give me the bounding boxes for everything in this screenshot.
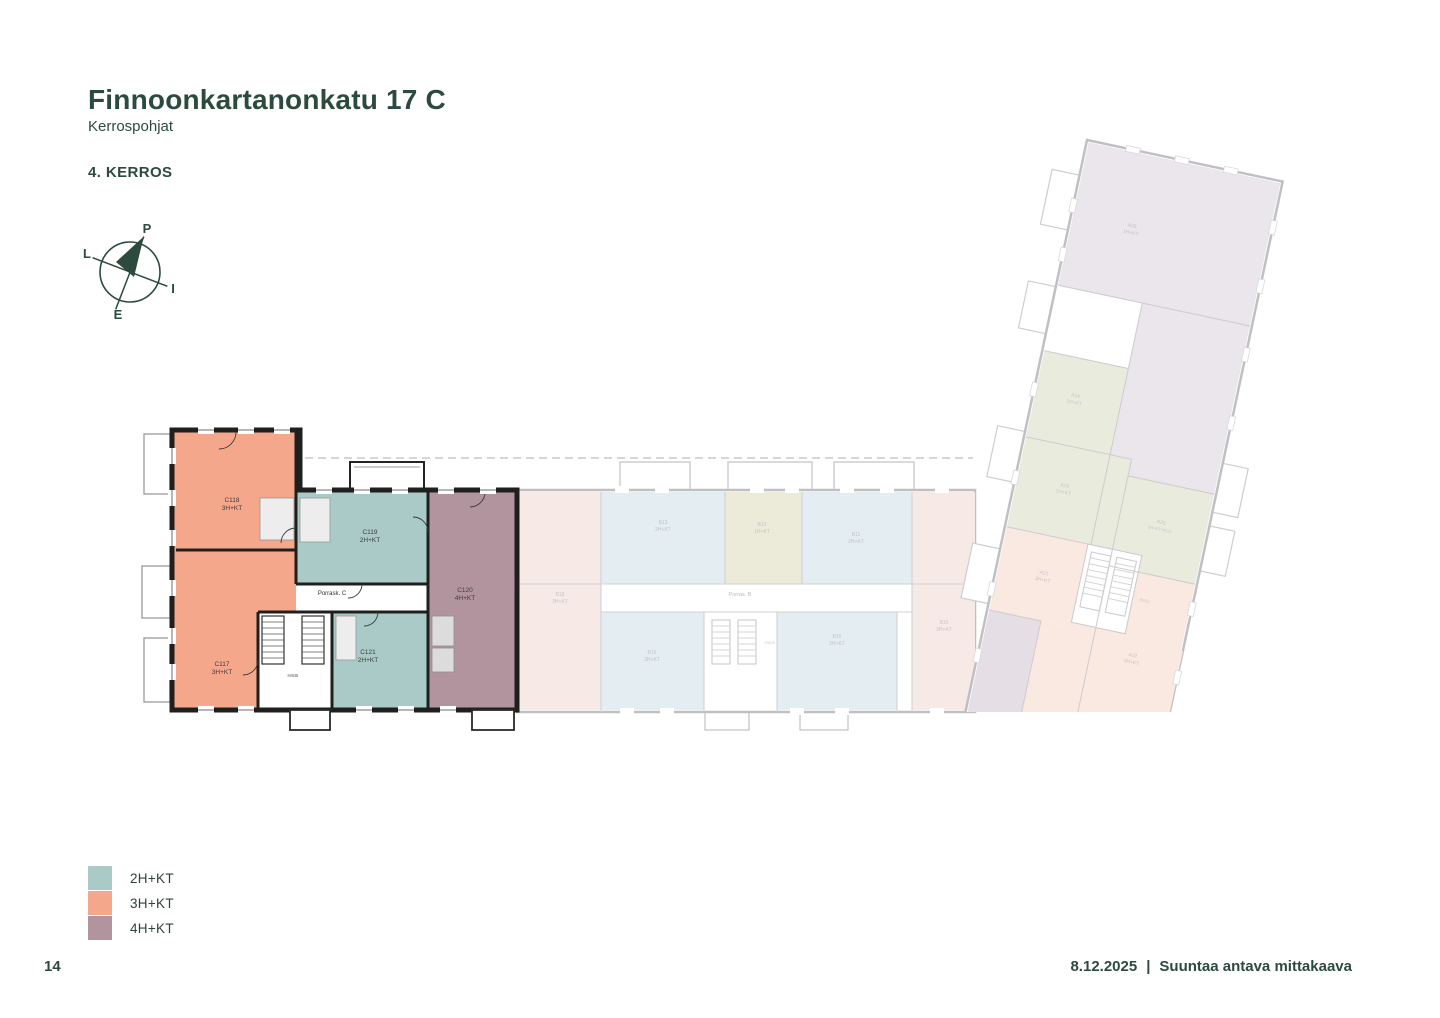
apartment-type: 3H+KT <box>936 627 952 633</box>
apartment-type: 4H+KT <box>455 595 475 602</box>
footer-separator: | <box>1146 958 1150 975</box>
elevator-b-label: HISSI <box>765 640 775 645</box>
legend: 2H+KT 3H+KT 4H+KT <box>88 866 174 941</box>
legend-item-3hkt: 3H+KT <box>88 891 174 915</box>
corridor-c <box>296 584 428 612</box>
apartment-label: B15 <box>833 634 842 640</box>
apartment-type: 1H+KT <box>754 529 770 535</box>
apartment-label: B12 <box>758 522 767 528</box>
legend-swatch-2hkt <box>88 866 112 890</box>
apartment-label: C120 <box>457 587 473 594</box>
apartment-type: 2H+KT <box>848 539 864 545</box>
apartment-label: C119 <box>362 529 377 536</box>
footer-scale-note: Suuntaa antava mittakaava <box>1159 958 1352 975</box>
legend-swatch-3hkt <box>88 891 112 915</box>
balcony <box>144 434 170 494</box>
apartment-label: B13 <box>659 520 668 526</box>
elevator-c-label: HISSI <box>288 673 299 678</box>
page-number: 14 <box>44 958 61 975</box>
apartment-type: 2H+KT <box>360 537 380 544</box>
footer-date: 8.12.2025 <box>1070 958 1137 975</box>
balcony <box>144 638 170 702</box>
building-b-ghost: B18 3H+KT B13 2H+KT B12 1H+KT B11 2H+KT … <box>517 462 975 730</box>
building-a-ghost: A26 1H+KT A24 1H+KT A23 1H+KT A25 1H+KT+… <box>927 131 1290 735</box>
entrance-porch <box>472 710 514 730</box>
floorplan-sheet: Finnoonkartanonkatu 17 C Kerrospohjat 4.… <box>0 0 1440 1018</box>
legend-label: 4H+KT <box>130 921 174 936</box>
apartment-type: 2H+KT <box>644 657 660 663</box>
apartment-label: C121 <box>360 649 376 656</box>
apartment-type: 2H+KT <box>829 641 845 647</box>
apartment-type: 3H+KT <box>552 599 568 605</box>
apartment-type: 3H+KT <box>212 669 232 676</box>
apartment-type: 2H+KT <box>655 527 671 533</box>
apartment-label: C117 <box>214 661 229 668</box>
entrance-porch <box>290 710 330 730</box>
stair-core-c <box>258 612 332 710</box>
apartment-label: B18 <box>556 592 565 598</box>
stairwell-c-label: Porrask. C <box>318 591 347 597</box>
footer-note-block: 8.12.2025 | Suuntaa antava mittakaava <box>1070 958 1352 975</box>
legend-item-2hkt: 2H+KT <box>88 866 174 890</box>
apartment-label: B11 <box>852 532 861 538</box>
legend-label: 2H+KT <box>130 871 174 886</box>
legend-swatch-4hkt <box>88 916 112 940</box>
stairwell-b-label: Porras. B <box>729 592 752 598</box>
page-title: Finnoonkartanonkatu 17 C <box>88 84 446 116</box>
legend-item-4hkt: 4H+KT <box>88 916 174 940</box>
apartment-label: B10 <box>940 620 949 626</box>
compass-south-label: E <box>114 307 123 322</box>
apartment-label: C118 <box>224 497 239 504</box>
balcony <box>350 462 424 490</box>
balcony <box>142 566 170 618</box>
apartment-label: B16 <box>648 650 657 656</box>
compass-west-label: L <box>83 246 91 261</box>
building-c: HISSI Porrask. C C118 3H+KT C117 3H+KT C… <box>142 426 517 730</box>
legend-label: 3H+KT <box>130 896 174 911</box>
floor-plan: B18 3H+KT B13 2H+KT B12 1H+KT B11 2H+KT … <box>140 130 1290 735</box>
apartment-type: 3H+KT <box>222 505 242 512</box>
apartment-type: 2H+KT <box>358 657 378 664</box>
